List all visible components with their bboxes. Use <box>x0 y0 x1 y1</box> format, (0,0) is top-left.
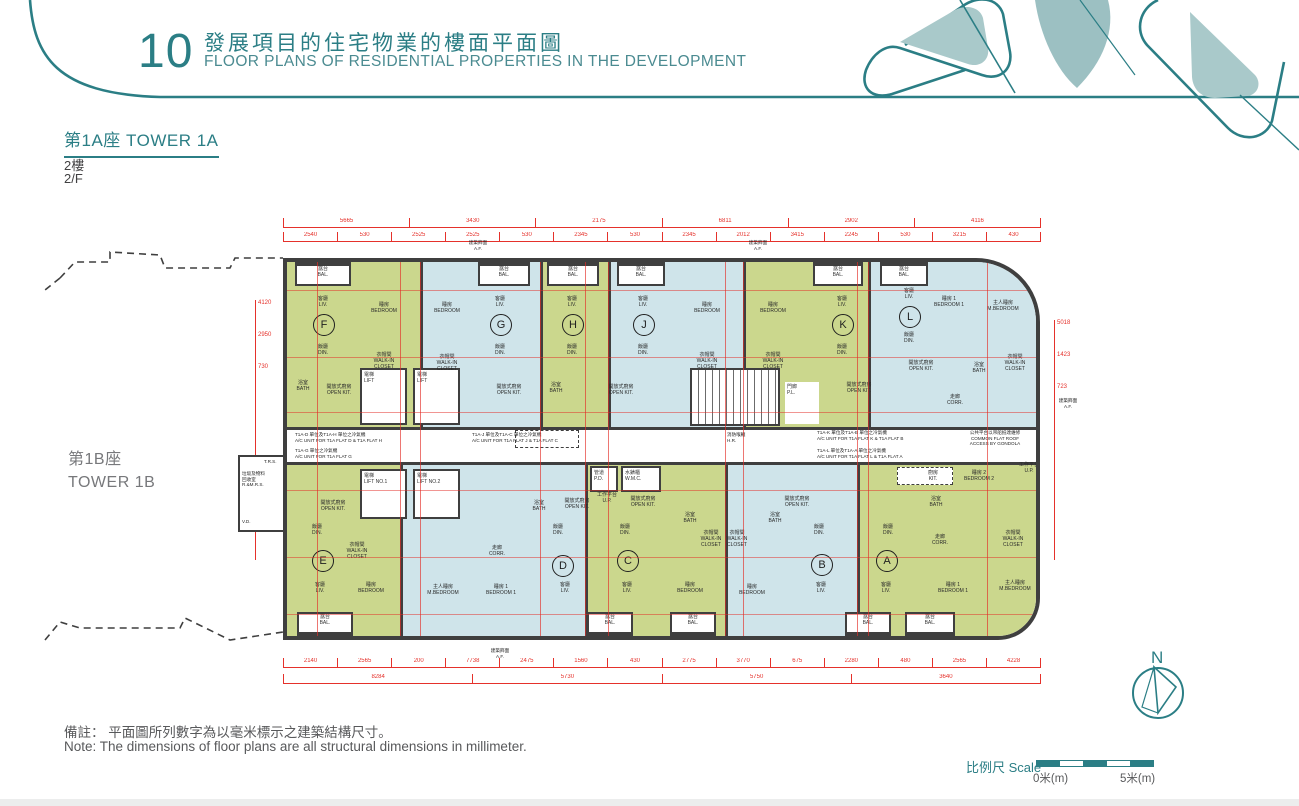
room-label-bed: 睡房 BEDROOM <box>751 302 795 314</box>
room-label-okit: 開放式廚房 OPEN KIT. <box>899 360 943 372</box>
dimension-label: 5665 <box>283 218 409 228</box>
dimension-label: 2475 <box>499 658 553 668</box>
room-label-wic: 衣帽間 WALK-IN CLOSET <box>991 530 1035 548</box>
room-label-bed1: 睡房 1 BEDROOM 1 <box>927 296 971 308</box>
dimension-label: 1423 <box>1057 352 1070 358</box>
dimension-gridline <box>287 357 1036 358</box>
room-label-corr: 走廊 CORR. <box>918 534 962 546</box>
ac-note-la: T1A-L 單位及T1A-A 單位之冷氣機 A/C UNIT FOR T1A F… <box>817 448 947 459</box>
dimension-label: 2565 <box>932 658 986 668</box>
dimension-label: 2280 <box>824 658 878 668</box>
room-label-okit: 開放式廚房 OPEN KIT. <box>317 384 361 396</box>
page-bottom-edge <box>0 799 1299 806</box>
dimension-label: 3640 <box>851 674 1040 684</box>
tower-heading: 第1A座 TOWER 1A <box>64 126 219 158</box>
dimension-label: 3215 <box>932 232 986 242</box>
dimension-label: 3770 <box>716 658 770 668</box>
balcony-c: 露台 BAL. <box>670 612 716 636</box>
dimension-label: 2525 <box>391 232 445 242</box>
dimension-label: 3430 <box>409 218 535 228</box>
dimension-gridline <box>868 262 869 636</box>
room-label-bed1: 睡房 1 BEDROOM 1 <box>931 582 975 594</box>
tower-name-en: TOWER 1A <box>126 131 218 150</box>
room-label-liv: 客廳 LIV. <box>550 296 594 308</box>
svg-text:N: N <box>1151 648 1163 667</box>
dimension-gridline <box>608 262 609 636</box>
room-label-liv: 客廳 LIV. <box>478 296 522 308</box>
building-outline: 露台 BAL. 露台 BAL. 露台 BAL. 露台 BAL. 露台 BAL. … <box>283 258 1040 640</box>
dimension-label: 2565 <box>337 658 391 668</box>
dimension-gridline <box>400 262 401 636</box>
room-label-okit: 開放式廚房 OPEN KIT. <box>621 496 665 508</box>
dimension-label: 430 <box>986 232 1040 242</box>
unit-circle-h: H <box>562 314 584 336</box>
dimension-label: 530 <box>607 232 661 242</box>
floor-plan: 566534302175681129024116 254053025252525… <box>40 210 1105 710</box>
dimension-label: 4228 <box>986 658 1040 668</box>
balcony-j: 露台 BAL. <box>617 262 665 286</box>
unit-circle-c: C <box>617 550 639 572</box>
dimension-gridline <box>420 262 421 636</box>
trs-label: T.R.S. <box>264 459 277 465</box>
room-label-liv: 客廳 LIV. <box>864 582 908 594</box>
room-label-bath: 浴室 BATH <box>668 512 712 524</box>
dimension-label: 4116 <box>914 218 1040 228</box>
unit-circle-g: G <box>490 314 512 336</box>
tower-name-zh: 第1A座 <box>64 131 121 150</box>
balcony-h: 露台 BAL. <box>547 262 599 286</box>
room-label-mbed: 主人睡房 M.BEDROOM <box>993 580 1037 592</box>
ac-note-kb: T1A-K 單位及T1A-B 單位之冷氣機 A/C UNIT FOR T1A F… <box>817 430 947 441</box>
af-callout: 建築飾面 A.F. <box>448 240 508 251</box>
dimension-gridline <box>317 262 318 636</box>
scale-five-label: 5米(m) <box>1120 770 1155 786</box>
dimension-gridline <box>287 614 1036 615</box>
room-label-din: 飯廳 DIN. <box>797 524 841 536</box>
room-label-bed: 睡房 BEDROOM <box>349 582 393 594</box>
refuse-room: 垃圾及物料 回收室 R.&M.R.S. T.R.S. V.D. <box>238 455 285 532</box>
room-label-din: 飯廳 DIN. <box>603 524 647 536</box>
room-label-kit: 廚房 KIT. <box>911 470 955 482</box>
dimension-label: 2345 <box>662 232 716 242</box>
staircase <box>690 368 780 426</box>
balcony-f: 露台 BAL. <box>295 262 351 286</box>
unit-circle-a: A <box>876 550 898 572</box>
dimension-gridline <box>987 262 988 636</box>
dimension-label: 2540 <box>283 232 337 242</box>
pipe-duct: 管道 P.D. <box>590 466 618 492</box>
dimension-gridline <box>743 262 744 636</box>
lift-number: NO.1 <box>376 479 388 485</box>
scale-label-zh: 比例尺 <box>966 760 1005 775</box>
dimension-row-bottom-2: 8284573057503640 <box>283 674 1041 684</box>
room-label-din: 飯廳 DIN. <box>536 524 580 536</box>
room-label-wic: 衣帽間 WALK-IN CLOSET <box>715 530 759 548</box>
dimension-gridline <box>540 262 541 636</box>
dimension-row-top-2: 2540530252525255302345530234520123415224… <box>283 232 1041 242</box>
note-zh: 備註： 平面圖所列數字為以毫米標示之建築結構尺寸。 <box>64 721 392 741</box>
ac-note-jc: T1A-J 單位及T1A-C 單位之冷氣機 A/C UNIT FOR T1A F… <box>472 432 602 443</box>
room-label-bed2: 睡房 2 BEDROOM 2 <box>957 470 1001 482</box>
scale-label: 比例尺 Scale <box>966 757 1041 776</box>
ac-note-g: T1A-G 單位之冷氣機 A/C UNIT FOR T1A FLAT G <box>295 448 415 459</box>
balcony-g: 露台 BAL. <box>478 262 530 286</box>
dimension-label: 6811 <box>662 218 788 228</box>
room-label-liv: 客廳 LIV. <box>799 582 843 594</box>
dimension-label: 7738 <box>445 658 499 668</box>
lift-label: 電梯 LIFT <box>417 473 427 485</box>
hose-reel-label: 消防喉轆 H.R. <box>727 432 767 443</box>
section-number: 10 <box>138 24 193 79</box>
room-label-okit: 開放式廚房 OPEN KIT. <box>599 384 643 396</box>
dimension-label: 2950 <box>258 332 271 338</box>
room-label-liv: 客廳 LIV. <box>605 582 649 594</box>
room-label-liv: 客廳 LIV. <box>298 582 342 594</box>
balcony-a: 露台 BAL. <box>905 612 955 636</box>
scale-bar <box>1036 760 1154 767</box>
dimension-gridline <box>585 262 586 636</box>
dimension-label: 5730 <box>472 674 661 684</box>
dimension-label: 2175 <box>535 218 661 228</box>
room-label-bath: 浴室 BATH <box>914 496 958 508</box>
dimension-label: 2140 <box>283 658 337 668</box>
north-compass: N <box>1118 645 1198 729</box>
floor-label-en: 2/F <box>64 171 83 186</box>
unit-circle-d: D <box>552 555 574 577</box>
room-label-okit: 開放式廚房 OPEN KIT. <box>487 384 531 396</box>
dimension-label: 8284 <box>283 674 472 684</box>
af-callout: 建築飾面 A.F. <box>470 648 530 659</box>
refuse-room-label: 垃圾及物料 回收室 R.&M.R.S. <box>242 471 284 488</box>
room-label-din: 飯廳 DIN. <box>550 344 594 356</box>
unit-circle-k: K <box>832 314 854 336</box>
room-label-din: 飯廳 DIN. <box>478 344 522 356</box>
dimension-label: 2245 <box>824 232 878 242</box>
dimension-label: 723 <box>1057 384 1070 390</box>
room-label-wic: 衣帽間 WALK-IN CLOSET <box>685 352 729 370</box>
dimension-label: 675 <box>770 658 824 668</box>
af-callout: 建築飾面 A.F. <box>728 240 788 251</box>
gondola-note: 公共平台以吊船抵達維修 COMMON FLAT ROOF ACCESS BY G… <box>955 430 1035 447</box>
dimension-label: 5750 <box>662 674 851 684</box>
dimension-gridline <box>287 557 1036 558</box>
room-label-corr: 走廊 CORR. <box>475 545 519 557</box>
dimension-label: 2345 <box>553 232 607 242</box>
dimension-row-bottom-1: 2140256520077382475156043027753770675228… <box>283 658 1041 668</box>
dimension-label: 530 <box>878 232 932 242</box>
room-label-bed: 睡房 BEDROOM <box>730 584 774 596</box>
room-label-liv: 客廳 LIV. <box>543 582 587 594</box>
room-label-mbed: 主人睡房 M.BEDROOM <box>421 584 465 596</box>
dimension-label: 480 <box>878 658 932 668</box>
room-label-din: 飯廳 DIN. <box>866 524 910 536</box>
balcony-e: 露台 BAL. <box>297 612 353 636</box>
dimension-label: 200 <box>391 658 445 668</box>
unit-circle-l: L <box>899 306 921 328</box>
dimension-label: 1560 <box>553 658 607 668</box>
water-meter-cabinet: 水錶櫃 W.M.C. <box>621 466 661 492</box>
room-label-bath: 浴室 BATH <box>753 512 797 524</box>
page-title-en: FLOOR PLANS OF RESIDENTIAL PROPERTIES IN… <box>204 53 746 71</box>
lift-label: 電梯 LIFT <box>364 473 374 485</box>
room-label-liv: 客廳 LIV. <box>301 296 345 308</box>
ac-note-dh: T1A-D 單位及T1A-H 單位之冷氣機 A/C UNIT FOR T1A F… <box>295 432 415 443</box>
dimension-label: 430 <box>607 658 661 668</box>
room-label-bed: 睡房 BEDROOM <box>685 302 729 314</box>
dimension-gridline <box>857 262 858 636</box>
room-label-liv: 客廳 LIV. <box>621 296 665 308</box>
room-label-okit: 開放式廚房 OPEN KIT. <box>775 496 819 508</box>
unit-circle-j: J <box>633 314 655 336</box>
room-label-wic: 衣帽間 WALK-IN CLOSET <box>751 352 795 370</box>
dimension-gridline <box>287 290 1036 291</box>
scale-zero-label: 0米(m) <box>1033 770 1068 786</box>
vd-label: V.D. <box>242 519 251 525</box>
dimension-label: 4120 <box>258 300 271 306</box>
balcony-l: 露台 BAL. <box>880 262 928 286</box>
room-label-bed: 睡房 BEDROOM <box>425 302 469 314</box>
dimension-label: 2775 <box>662 658 716 668</box>
dimension-label: 2902 <box>788 218 914 228</box>
dimension-column-right: 50181423723 <box>1054 320 1070 560</box>
room-label-din: 飯廳 DIN. <box>301 344 345 356</box>
balcony-d: 露台 BAL. <box>587 612 633 636</box>
room-label-din: 飯廳 DIN. <box>887 332 931 344</box>
dimension-gridline <box>725 262 726 636</box>
room-label-bed1: 睡房 1 BEDROOM 1 <box>479 584 523 596</box>
dimension-label: 730 <box>258 364 271 370</box>
dimension-gridline <box>287 412 1036 413</box>
dimension-row-top-1: 566534302175681129024116 <box>283 218 1041 228</box>
af-callout: 建築飾面 A.F. <box>1040 398 1096 409</box>
room-label-din: 飯廳 DIN. <box>621 344 665 356</box>
room-label-okit: 開放式廚房 OPEN KIT. <box>837 382 881 394</box>
room-label-up: 工作平台 U.P. <box>1007 462 1040 474</box>
lift-lobby: 門廊 P.L. <box>785 382 819 424</box>
dimension-label: 530 <box>337 232 391 242</box>
room-label-corr: 走廊 CORR. <box>933 394 977 406</box>
dimension-label: 5018 <box>1057 320 1070 326</box>
note-en: Note: The dimensions of floor plans are … <box>64 739 527 754</box>
room-label-bed: 睡房 BEDROOM <box>668 582 712 594</box>
unit-circle-e: E <box>312 550 334 572</box>
dimension-gridline <box>287 490 1036 491</box>
balcony-k: 露台 BAL. <box>813 262 863 286</box>
lift-number: NO.2 <box>429 479 441 485</box>
